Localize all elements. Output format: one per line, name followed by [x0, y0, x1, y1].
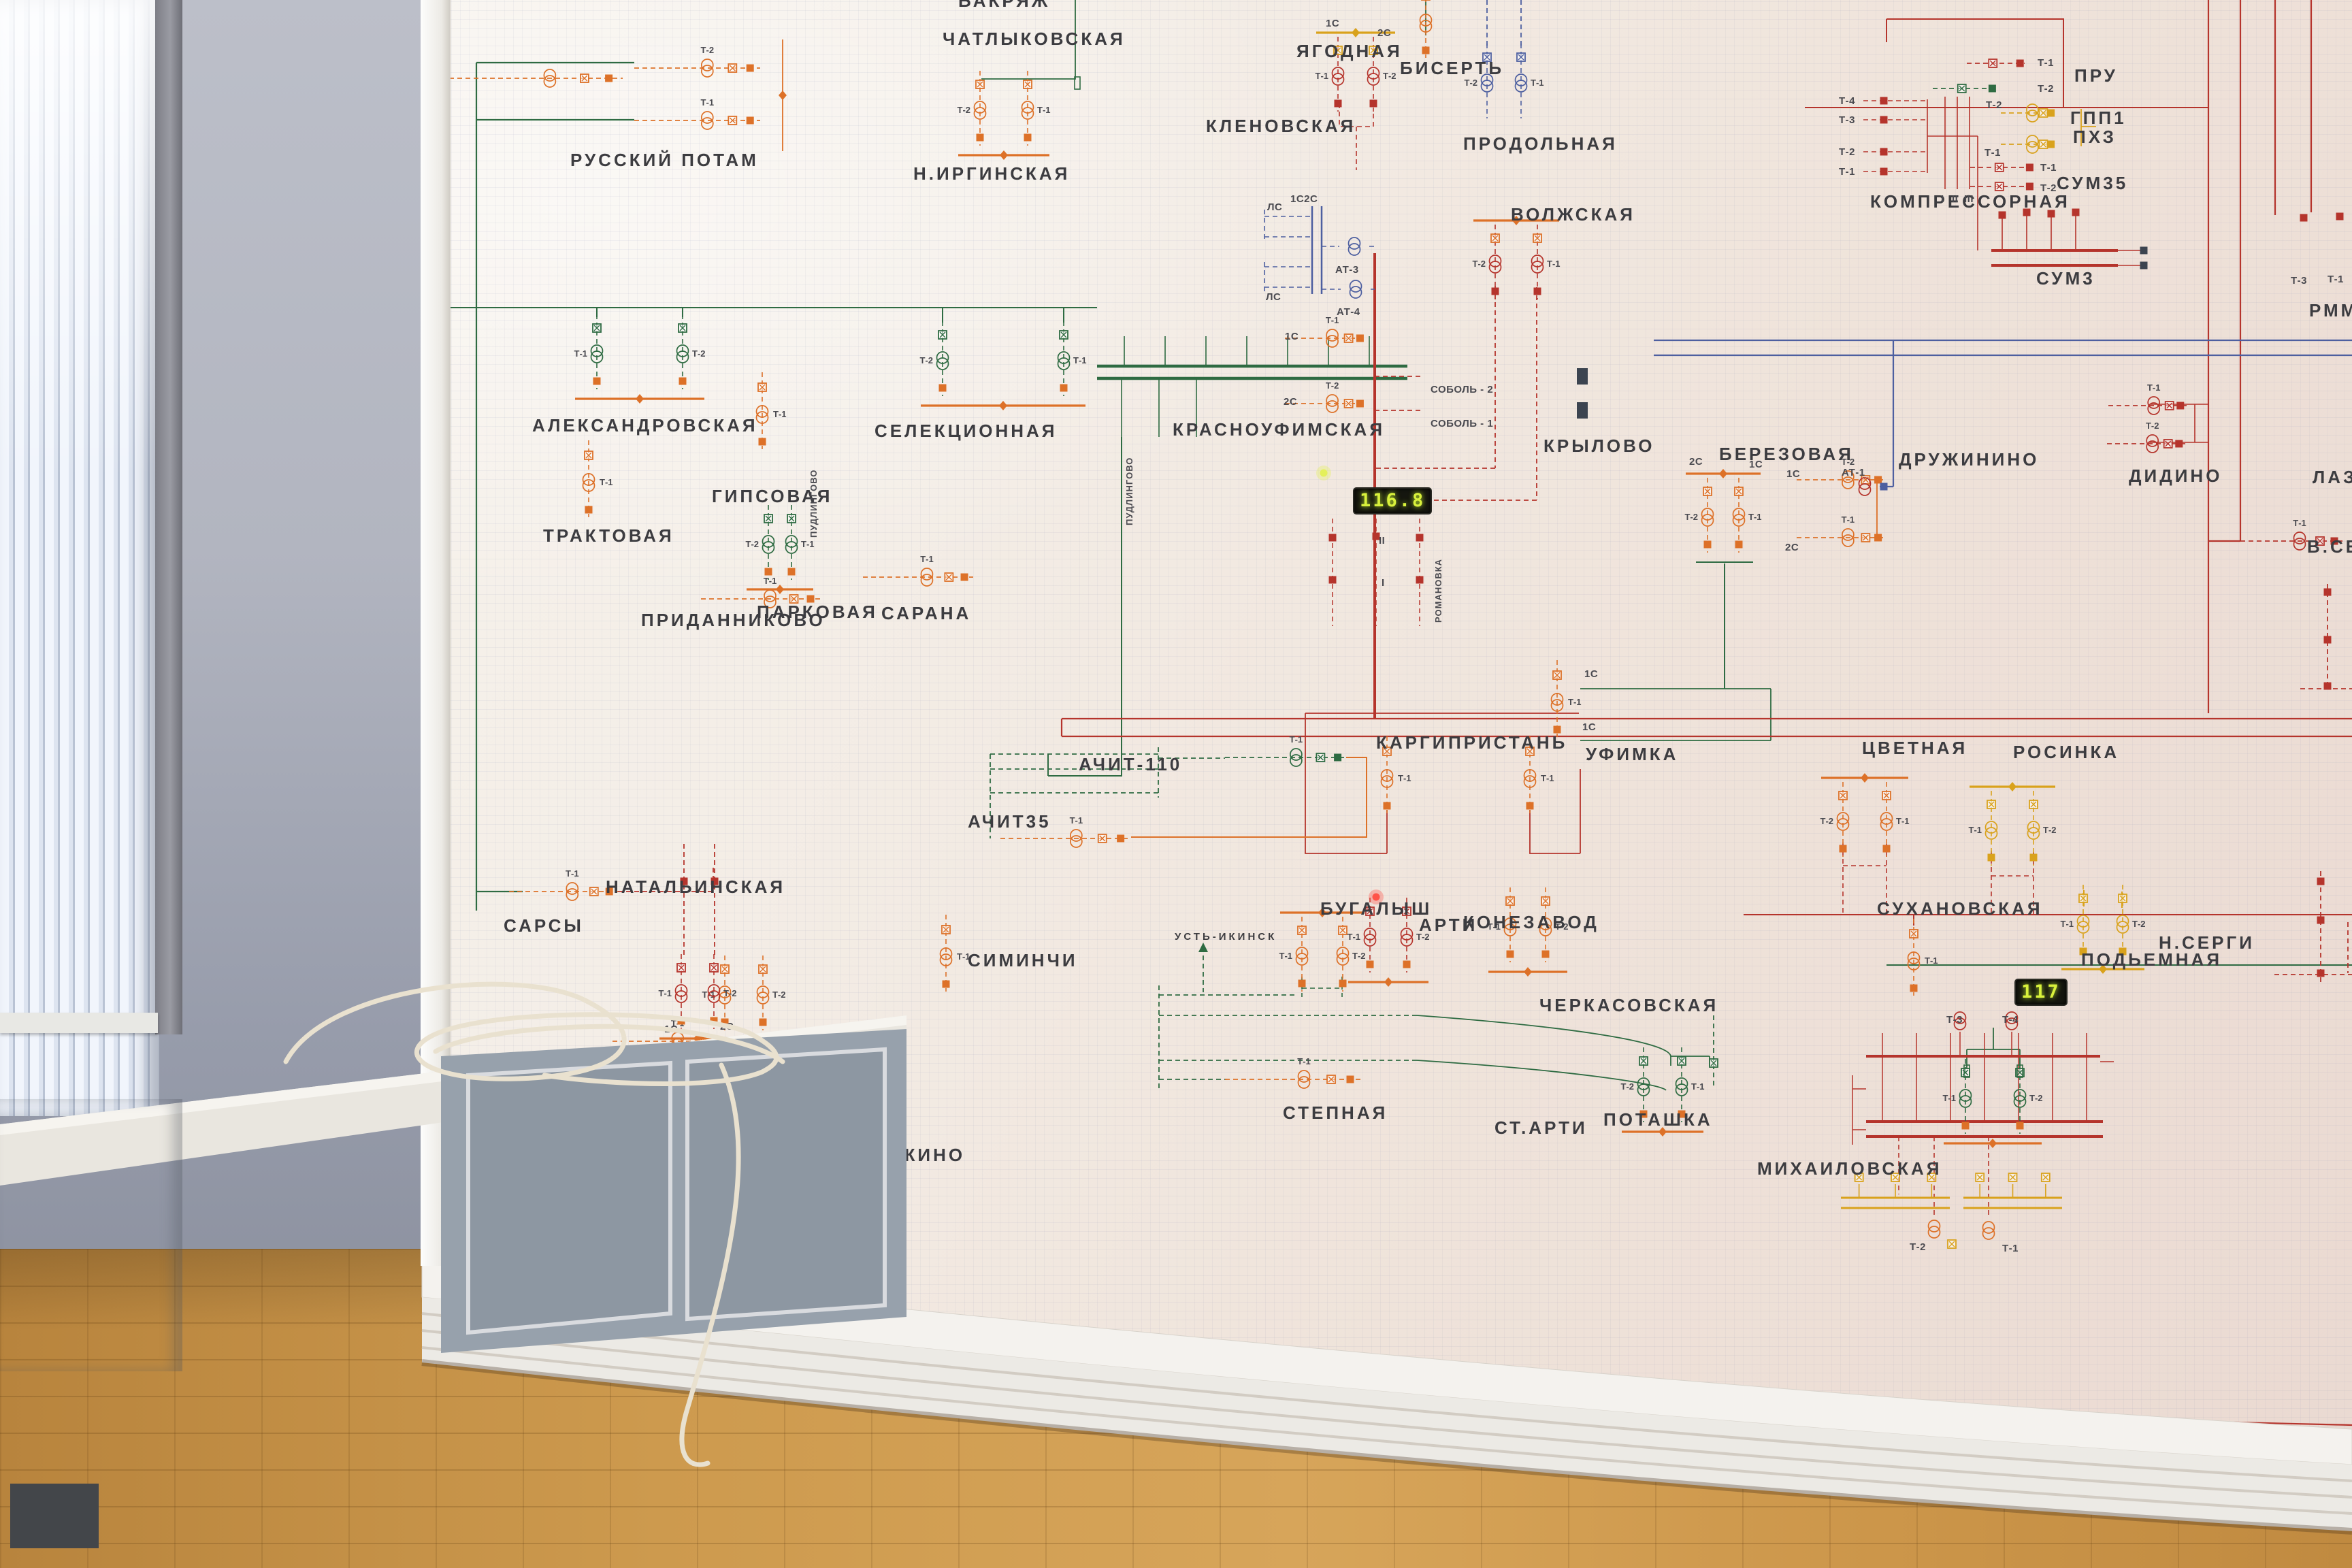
room-foreground: [0, 0, 2352, 1568]
cabinet-panel-left: [468, 1063, 670, 1333]
dark-floor-object: [10, 1484, 99, 1548]
radiator: [0, 1099, 182, 1371]
cabinet-panel-right: [687, 1049, 885, 1319]
control-room-photo: Т-2Т-1Т-1Т-1Т-1Т-1Т-1Т-1Т-1Т-1Т-1Т-2Т-2Т…: [0, 0, 2352, 1568]
